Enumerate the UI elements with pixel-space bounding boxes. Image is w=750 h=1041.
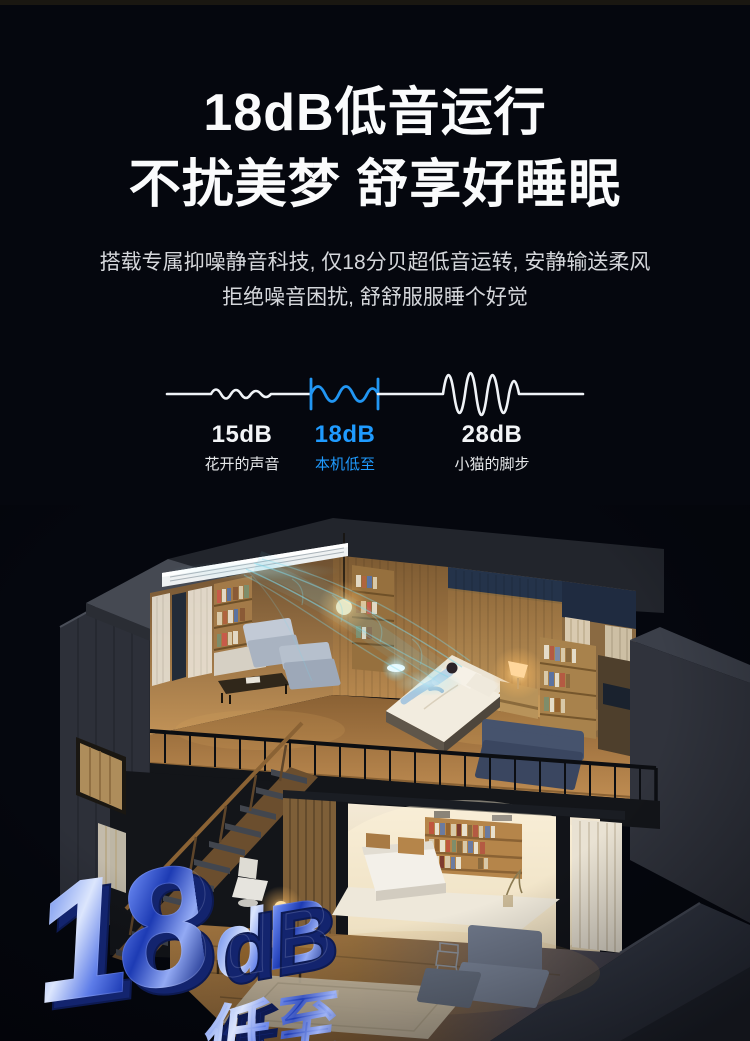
top-edge-strip [0,0,750,5]
wave-highlight-segment [311,379,378,409]
decibel-item-15db: 15dB 花开的声音 [182,421,302,474]
decibel-value: 15dB [182,421,302,449]
page-subtitle: 搭载专属抑噪静音科技, 仅18分贝超低音运转, 安静输送柔风 拒绝噪音困扰, 舒… [0,246,750,315]
subtitle-line-1: 搭载专属抑噪静音科技, 仅18分贝超低音运转, 安静输送柔风 [100,251,651,274]
wave-loud-segment [378,373,583,415]
decibel-value: 18dB [285,421,405,449]
decibel-comparison: 15dB 花开的声音 18dB 本机低至 28dB 小猫的脚步 [165,421,585,485]
decibel-item-28db: 28dB 小猫的脚步 [432,421,552,474]
decibel-desc: 小猫的脚步 [432,453,552,474]
decibel-item-18db: 18dB 本机低至 [285,421,405,474]
subtitle-line-2: 拒绝噪音困扰, 舒舒服服睡个好觉 [222,286,528,309]
badge-number: 18 [23,846,210,1022]
decibel-desc: 本机低至 [285,453,405,474]
page-title: 18dB低音运行 不扰美梦 舒享好睡眠 [0,78,750,222]
decibel-badge-3d: 18 dB 低至 [23,828,346,1041]
decibel-desc: 花开的声音 [182,453,302,474]
soundwave-graphic [165,366,585,422]
wave-quiet-segment [167,390,311,399]
title-line-1: 18dB低音运行 [203,84,546,142]
title-line-2: 不扰美梦 舒享好睡眠 [129,156,621,214]
promo-page: 18dB低音运行 不扰美梦 舒享好睡眠 搭载专属抑噪静音科技, 仅18分贝超低音… [0,0,750,1041]
decibel-value: 28dB [432,421,552,449]
